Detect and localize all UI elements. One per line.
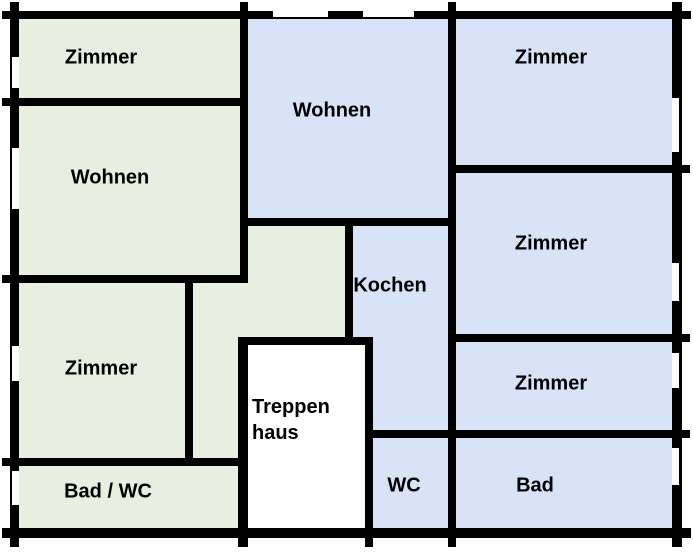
wall-stub-bottom-left-v — [10, 538, 19, 547]
room-label-wohnen-left: Wohnen — [71, 167, 150, 190]
room-label-zimmer-lower-right: Zimmer — [515, 373, 587, 396]
room-label-zimmer-top-left: Zimmer — [65, 47, 137, 70]
wall-stub-top-left-v — [10, 2, 19, 11]
hallway-upper — [248, 226, 345, 283]
window-right-2 — [672, 263, 679, 301]
room-label-wc: WC — [387, 475, 420, 498]
window-right-3 — [672, 353, 679, 388]
room-label-bad-wc-left: Bad / WC — [64, 481, 152, 504]
wall-zimmer-bl-right — [185, 283, 193, 466]
wall-stub-bottom-left-h — [2, 528, 10, 538]
floor-plan: Zimmer Wohnen Zimmer Bad / WC Wohnen Koc… — [0, 0, 693, 556]
wall-kochen-left — [345, 218, 353, 345]
wall-stub-top-right-h — [682, 11, 691, 19]
wall-apartment-separator-top — [240, 2, 248, 283]
hallway-lower — [193, 337, 238, 458]
wall-center-vertical — [448, 2, 456, 547]
wall-divider-zimmer-mr-lr — [448, 334, 690, 342]
wall-stub-top-left-h — [2, 11, 10, 19]
window-right-4 — [672, 448, 679, 485]
room-label-treppenhaus-line2: haus — [252, 420, 330, 446]
room-label-wohnen-center: Wohnen — [293, 100, 372, 123]
wall-divider-zimmer-wohnen-left — [2, 98, 248, 106]
wall-divider-wohnen-hall-left — [2, 275, 248, 283]
window-left-1 — [12, 57, 19, 88]
room-label-bad-right: Bad — [516, 475, 554, 498]
wall-stub-bottom-right-v — [672, 538, 682, 547]
wall-stub-top-right-v — [672, 2, 682, 11]
wall-outer-bottom — [10, 528, 682, 538]
window-top-1 — [273, 11, 328, 17]
room-label-treppenhaus-line1: Treppen — [252, 394, 330, 420]
wall-divider-zimmer-badwc-left — [2, 458, 248, 466]
wall-treppenhaus-right — [365, 337, 373, 547]
window-left-4 — [12, 471, 19, 505]
room-label-kochen: Kochen — [353, 275, 426, 298]
wall-wc-bad-top — [365, 430, 690, 438]
window-left-2 — [12, 148, 19, 209]
room-bad-right — [456, 438, 672, 528]
wall-stub-bottom-right-h — [682, 528, 691, 538]
hallway-middle — [193, 283, 345, 337]
room-zimmer-top-right — [456, 19, 672, 165]
room-label-zimmer-middle-right: Zimmer — [515, 233, 587, 256]
room-wohnen-left — [19, 106, 240, 275]
wall-divider-zimmer-tr-mr — [448, 165, 690, 173]
room-label-treppenhaus: Treppen haus — [252, 394, 330, 446]
wall-outer-top — [10, 11, 682, 19]
wall-treppenhaus-left — [238, 337, 248, 547]
window-left-3 — [12, 346, 19, 381]
window-top-2 — [363, 11, 414, 17]
window-right-1 — [672, 98, 679, 152]
room-label-zimmer-bottom-left: Zimmer — [65, 358, 137, 381]
room-label-zimmer-top-right: Zimmer — [515, 47, 587, 70]
